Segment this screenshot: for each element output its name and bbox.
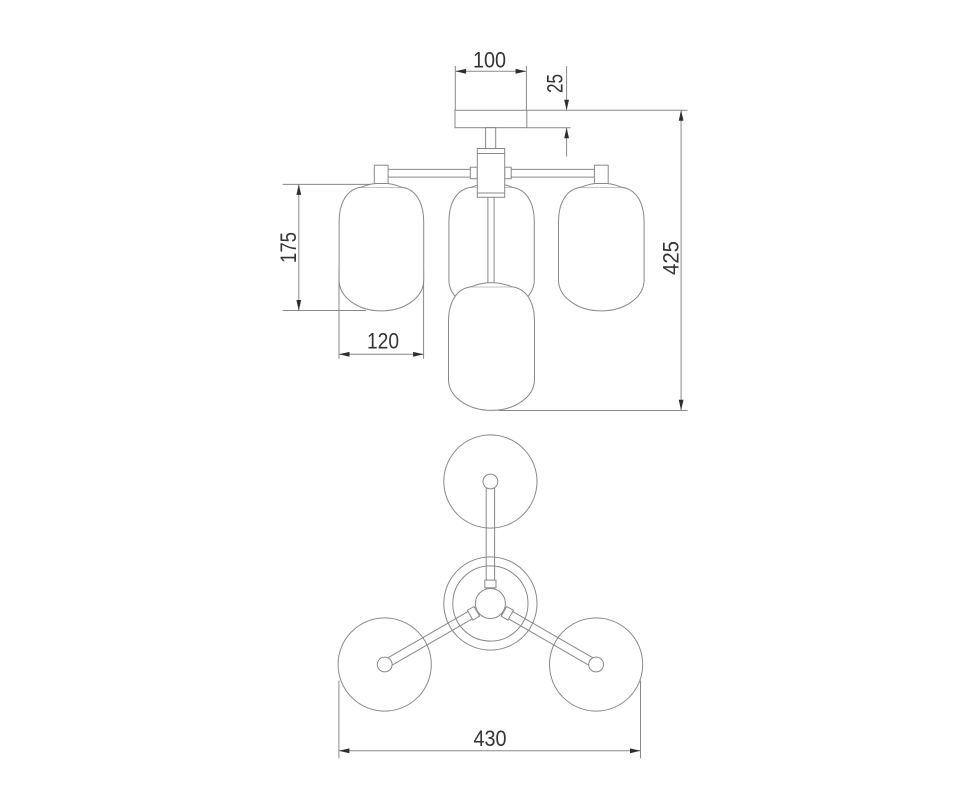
svg-text:175: 175 <box>276 232 301 263</box>
svg-text:25: 25 <box>542 74 567 93</box>
svg-text:425: 425 <box>658 241 683 275</box>
svg-text:100: 100 <box>473 47 506 72</box>
svg-text:430: 430 <box>474 726 507 751</box>
svg-text:120: 120 <box>367 328 399 353</box>
